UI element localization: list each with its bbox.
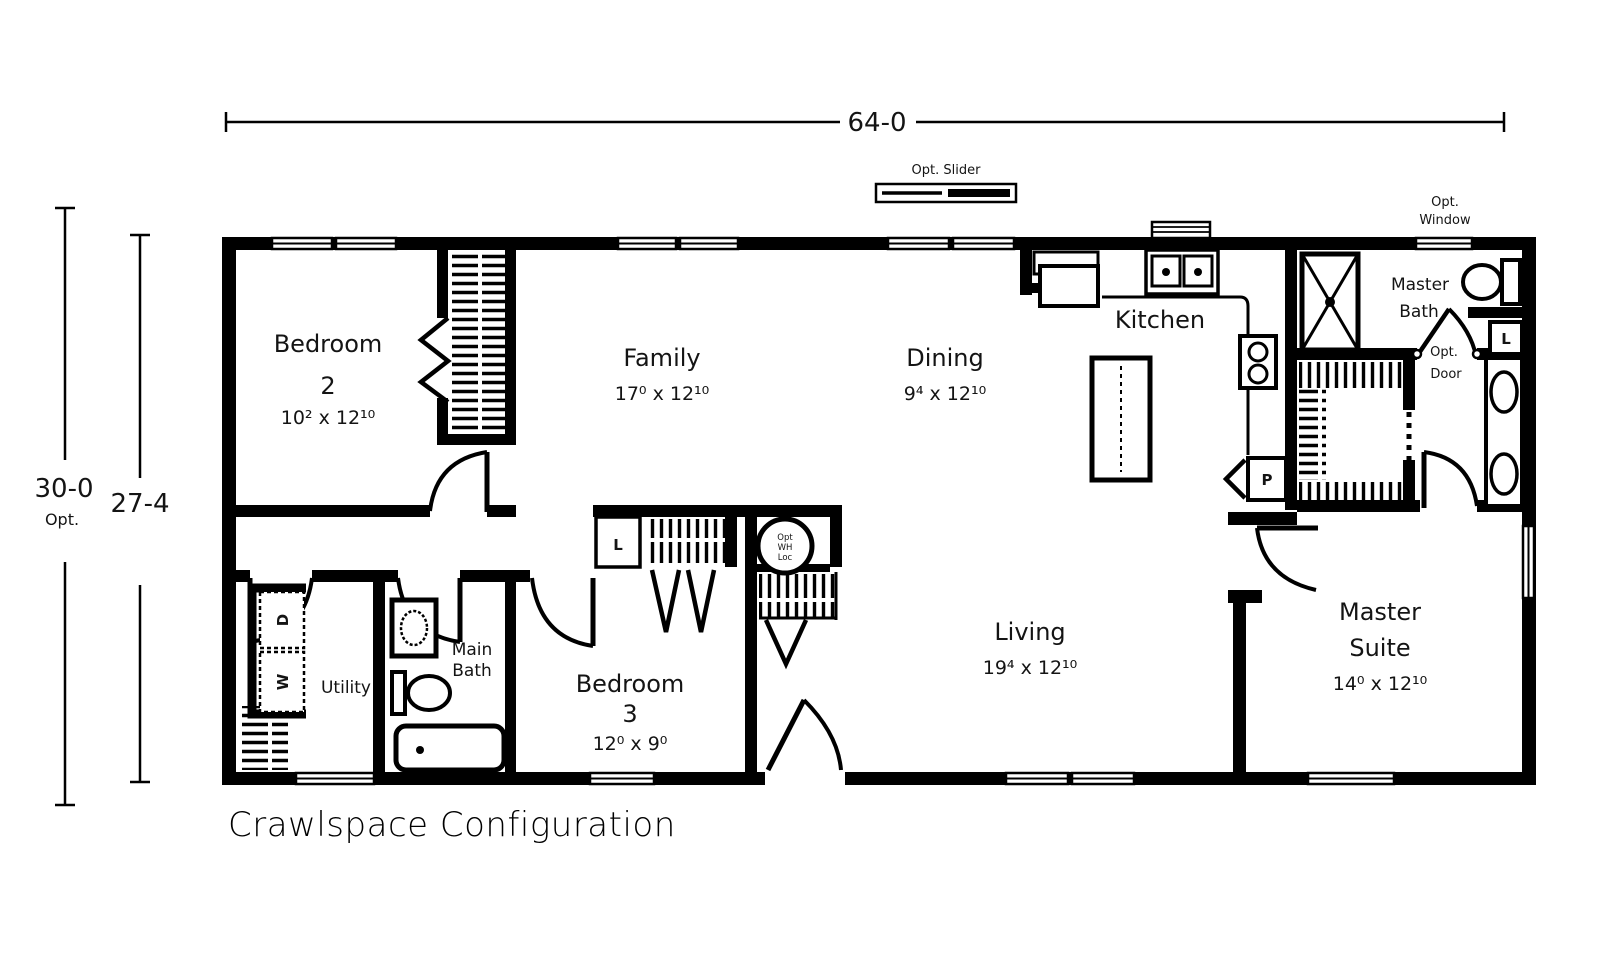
walkin-closet-hatch-bottom (1299, 480, 1403, 505)
opt-window-labels: Opt. Window (1419, 195, 1471, 228)
masterbath-name-1: Master (1391, 275, 1449, 295)
dimension-depth-label: 27-4 (110, 489, 169, 519)
range-stove (1240, 336, 1276, 388)
wall-b2closet-right (505, 250, 516, 445)
mainbath-name-1: Main (452, 640, 493, 660)
wall-bedroom3-east (745, 505, 757, 772)
family-labels: Family 17⁰ x 12¹⁰ (615, 344, 710, 405)
wall-whnook-east-stub (830, 517, 842, 567)
toilet-masterbath (1463, 260, 1520, 304)
vanity-double-sink (1486, 358, 1522, 506)
window-utility (296, 773, 374, 784)
water-heater-label-2: WH (778, 543, 793, 553)
dining-labels: Dining 9⁴ x 12¹⁰ (904, 344, 986, 405)
pantry-label: P (1262, 471, 1273, 489)
floor-plan-page: 64-0 30-0 Opt. 27-4 Opt. Slider (0, 0, 1600, 960)
living-labels: Living 19⁴ x 12¹⁰ (983, 618, 1078, 679)
coat-closet-hatch (759, 574, 836, 618)
door-mastersuite-to-bath-passage (1424, 452, 1477, 508)
walkin-closet-hatch-left (1299, 388, 1326, 480)
kitchen-sink (1146, 222, 1218, 294)
dimension-overall-width: 64-0 (226, 108, 1504, 138)
shower (1302, 254, 1358, 350)
wall-hall-south-of-family (593, 505, 842, 517)
dimension-line-left-outer (55, 208, 75, 805)
pantry: P (1248, 458, 1286, 500)
window-mastersuite (1308, 773, 1394, 784)
wall-west (222, 237, 236, 785)
washer-label: W (274, 673, 292, 690)
opt-door-label-2: Door (1430, 367, 1462, 382)
opt-window-label-2: Window (1419, 213, 1471, 228)
bifold-coat-closet (766, 620, 806, 664)
wall-mainbath-bedroom3-divider (505, 582, 516, 772)
wall-toilet-nook (1468, 307, 1522, 318)
bedroom3-size: 12⁰ x 9⁰ (593, 733, 668, 755)
bifold-bedroom3-closet (652, 570, 714, 632)
mastersuite-labels: Master Suite 14⁰ x 12¹⁰ (1333, 598, 1428, 695)
bedroom3-number: 3 (622, 700, 637, 728)
dimension-width-label: 64-0 (847, 108, 906, 138)
linen-closet-hall: L (596, 517, 640, 567)
plan-title: Crawlspace Configuration (228, 805, 676, 845)
door-bedroom3 (532, 578, 593, 646)
optional-slider-symbol: Opt. Slider (876, 163, 1016, 202)
bedroom2-labels: Bedroom 2 10² x 12¹⁰ (274, 330, 383, 429)
door-mastersuite-entry (1257, 528, 1318, 590)
refrigerator (1040, 266, 1098, 306)
wall-utility-mainbath-divider (373, 582, 385, 772)
mainbath-labels: Main Bath (452, 640, 493, 681)
bedroom2-number: 2 (320, 372, 335, 400)
bedroom2-closet-hatch (449, 252, 505, 432)
opt-door-label-1: Opt. (1430, 345, 1458, 360)
bifold-bedroom2-closet (421, 318, 448, 402)
window-masterbath-optional (1416, 238, 1472, 249)
door-front-entry (765, 700, 845, 785)
linen-hall-label: L (613, 536, 623, 554)
door-bedroom2 (430, 452, 487, 512)
living-size: 19⁴ x 12¹⁰ (983, 657, 1078, 679)
family-size: 17⁰ x 12¹⁰ (615, 383, 710, 405)
utility-name: Utility (321, 678, 371, 698)
utility-washer-dryer: D W (252, 588, 306, 714)
living-name: Living (994, 618, 1065, 646)
water-heater-label-3: Loc (778, 553, 793, 563)
bedroom3-labels: Bedroom 3 12⁰ x 9⁰ (576, 670, 685, 755)
mastersuite-name-2: Suite (1349, 634, 1410, 662)
window-mastersuite-east (1523, 526, 1534, 598)
linen-closet-master: L (1490, 322, 1522, 354)
kitchen-fixtures: P (1034, 222, 1286, 500)
bedroom3-name: Bedroom (576, 670, 685, 698)
mastersuite-name-1: Master (1339, 598, 1421, 626)
wall-hall-bath-bedroom3 (460, 570, 530, 582)
wall-walkincloset-stub-top (1403, 360, 1415, 410)
water-heater-label-1: Opt (777, 533, 793, 543)
opt-door-labels: Opt. Door (1430, 345, 1462, 382)
window-bedroom3 (590, 773, 654, 784)
mastersuite-size: 14⁰ x 12¹⁰ (1333, 673, 1428, 695)
bifold-pantry (1226, 460, 1245, 498)
mainbath-name-2: Bath (452, 661, 492, 681)
mainbath-sink (392, 600, 436, 656)
dining-size: 9⁴ x 12¹⁰ (904, 383, 986, 405)
wall-hall-utility-bath (312, 570, 398, 582)
masterbath-name-2: Bath (1399, 302, 1439, 322)
opt-slider-label: Opt. Slider (912, 163, 982, 178)
wall-bedroom2-south-stub (487, 505, 516, 517)
dimension-depth-opt-note: Opt. (45, 510, 79, 529)
dimension-overall-depth: 27-4 (110, 235, 169, 782)
wall-b3closet-east (725, 517, 737, 567)
wall-bedroom2-south (236, 505, 430, 517)
dimension-depth-opt-label: 30-0 (34, 474, 93, 504)
dimension-overall-depth-optional: 30-0 Opt. (34, 208, 93, 805)
toilet-mainbath (392, 672, 450, 714)
wall-b2closet-left-upper (437, 250, 448, 318)
water-heater: Opt WH Loc (758, 519, 812, 573)
linen-master-label: L (1501, 330, 1511, 348)
bedroom2-size: 10² x 12¹⁰ (281, 407, 376, 429)
bathtub (396, 726, 504, 770)
wall-b2closet-bottom (437, 434, 516, 445)
wall-walkincloset-stub-bottom (1403, 460, 1415, 512)
walkin-closet-hatch-top (1299, 362, 1403, 388)
kitchen-island (1092, 358, 1150, 480)
floor-plan-drawing: 64-0 30-0 Opt. 27-4 Opt. Slider (0, 0, 1600, 960)
dryer-label: D (274, 614, 292, 626)
bedroom2-name: Bedroom (274, 330, 383, 358)
wall-living-kitchen-stub (1228, 512, 1297, 525)
opt-window-label-1: Opt. (1431, 195, 1459, 210)
dining-name: Dining (906, 344, 983, 372)
masterbath-labels: Master Bath (1391, 275, 1449, 322)
slider-door-panel (948, 189, 1010, 197)
bedroom3-closet-hatch (650, 519, 725, 563)
family-name: Family (623, 344, 700, 372)
wall-north (222, 237, 1536, 250)
kitchen-name: Kitchen (1115, 306, 1205, 334)
wall-east (1522, 237, 1536, 785)
wall-mastersuite-west (1233, 590, 1246, 772)
